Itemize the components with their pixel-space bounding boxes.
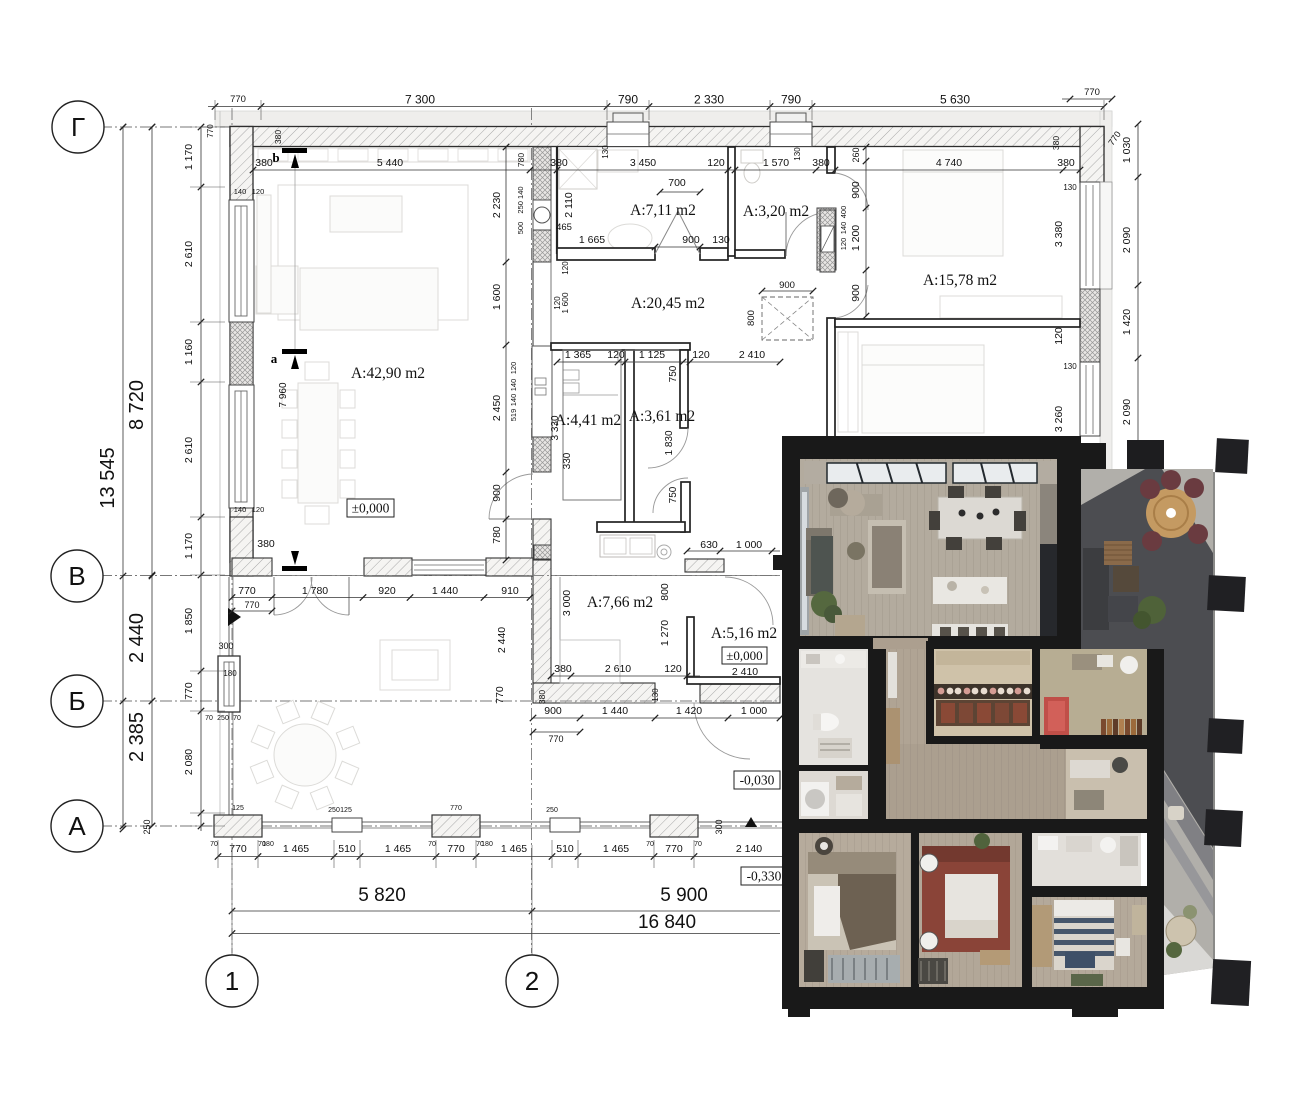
svg-text:1 465: 1 465 (501, 843, 527, 855)
svg-text:1 665: 1 665 (579, 234, 605, 246)
svg-text:790: 790 (781, 93, 801, 107)
svg-text:А: А (68, 811, 86, 841)
svg-text:±0,000: ±0,000 (726, 648, 762, 663)
svg-text:250: 250 (217, 715, 229, 722)
svg-text:1 600: 1 600 (491, 284, 503, 310)
svg-text:1 000: 1 000 (741, 705, 767, 717)
svg-text:120: 120 (1053, 327, 1065, 345)
svg-text:2 330: 2 330 (694, 93, 724, 107)
svg-text:140: 140 (839, 222, 848, 235)
svg-text:250: 250 (328, 807, 340, 814)
svg-text:5 900: 5 900 (660, 885, 708, 906)
svg-text:250: 250 (546, 807, 558, 814)
svg-text:130: 130 (651, 688, 660, 702)
svg-text:330: 330 (562, 452, 573, 469)
svg-text:7 960: 7 960 (278, 382, 289, 407)
svg-text:70: 70 (428, 841, 436, 848)
svg-text:120: 120 (707, 157, 725, 169)
svg-text:2 090: 2 090 (1121, 227, 1133, 253)
svg-text:770: 770 (548, 734, 563, 744)
svg-text:700: 700 (668, 177, 686, 189)
svg-text:1 170: 1 170 (183, 533, 195, 559)
svg-text:380: 380 (1051, 136, 1061, 150)
svg-text:120: 120 (252, 187, 265, 196)
svg-text:770: 770 (447, 843, 465, 855)
svg-text:2 090: 2 090 (1121, 399, 1133, 425)
svg-text:140: 140 (509, 379, 518, 392)
svg-text:770: 770 (1084, 87, 1100, 98)
svg-text:120: 120 (664, 663, 682, 675)
svg-text:A:5,16 m2: A:5,16 m2 (711, 625, 777, 642)
svg-text:900: 900 (491, 484, 503, 502)
svg-text:130: 130 (712, 234, 730, 246)
svg-text:2 385: 2 385 (126, 712, 148, 762)
svg-text:1: 1 (225, 966, 239, 996)
svg-text:1 570: 1 570 (763, 157, 789, 169)
svg-text:a: a (271, 351, 278, 366)
svg-text:В: В (68, 561, 85, 591)
svg-text:1 365: 1 365 (565, 349, 591, 361)
svg-text:380: 380 (257, 538, 275, 550)
svg-text:A:7,66 m2: A:7,66 m2 (587, 594, 653, 611)
svg-text:1 830: 1 830 (664, 430, 675, 455)
svg-text:770: 770 (665, 843, 683, 855)
svg-text:900: 900 (779, 280, 795, 291)
svg-text:910: 910 (501, 585, 519, 597)
svg-text:A:4,41 m2: A:4,41 m2 (555, 412, 621, 429)
svg-text:120: 120 (561, 261, 570, 275)
svg-text:7 300: 7 300 (405, 93, 435, 107)
svg-text:2 610: 2 610 (183, 437, 195, 463)
svg-text:A:3,20 m2: A:3,20 m2 (743, 203, 809, 220)
svg-text:260: 260 (851, 147, 861, 162)
svg-text:510: 510 (556, 843, 574, 855)
svg-text:1 780: 1 780 (302, 585, 328, 597)
svg-text:380: 380 (1057, 157, 1075, 169)
svg-text:70: 70 (646, 841, 654, 848)
svg-text:500: 500 (516, 222, 525, 235)
svg-text:380: 380 (255, 157, 273, 169)
svg-text:380: 380 (273, 130, 283, 144)
svg-text:380: 380 (537, 690, 547, 704)
svg-text:130: 130 (793, 147, 802, 161)
svg-text:2 410: 2 410 (732, 666, 758, 678)
svg-text:920: 920 (378, 585, 396, 597)
svg-text:3 260: 3 260 (1053, 406, 1065, 432)
svg-text:770: 770 (230, 94, 246, 105)
svg-text:2 080: 2 080 (183, 749, 195, 775)
svg-text:b: b (272, 150, 279, 165)
svg-text:770: 770 (450, 805, 462, 812)
svg-text:A:7,11 m2: A:7,11 m2 (630, 202, 696, 219)
svg-text:380: 380 (812, 157, 830, 169)
svg-text:16 840: 16 840 (638, 912, 696, 933)
svg-text:1 030: 1 030 (1121, 137, 1133, 163)
svg-text:8 720: 8 720 (126, 380, 148, 430)
svg-text:A:20,45 m2: A:20,45 m2 (631, 295, 705, 312)
svg-text:2 410: 2 410 (739, 349, 765, 361)
svg-text:900: 900 (850, 181, 862, 199)
svg-text:140: 140 (234, 505, 247, 514)
svg-text:130: 130 (1063, 183, 1077, 192)
svg-text:2 230: 2 230 (491, 192, 503, 218)
svg-text:510: 510 (338, 843, 356, 855)
svg-text:180: 180 (481, 841, 493, 848)
svg-text:-0,030: -0,030 (740, 773, 775, 788)
svg-text:125: 125 (232, 805, 244, 812)
svg-text:3 380: 3 380 (1053, 221, 1065, 247)
svg-text:120: 120 (509, 362, 518, 375)
svg-text:465: 465 (556, 222, 572, 233)
svg-text:125: 125 (340, 807, 352, 814)
svg-text:1 125: 1 125 (639, 349, 665, 361)
svg-text:1 465: 1 465 (603, 843, 629, 855)
svg-text:A:15,78 m2: A:15,78 m2 (923, 272, 997, 289)
svg-text:4 740: 4 740 (936, 157, 962, 169)
svg-text:1 465: 1 465 (385, 843, 411, 855)
svg-text:120: 120 (607, 349, 625, 361)
svg-text:900: 900 (544, 705, 562, 717)
svg-text:180: 180 (262, 841, 274, 848)
svg-text:1 160: 1 160 (183, 339, 195, 365)
svg-text:3 450: 3 450 (630, 157, 656, 169)
svg-text:1 850: 1 850 (183, 608, 195, 634)
svg-text:2 440: 2 440 (126, 613, 148, 663)
svg-text:750: 750 (668, 365, 679, 382)
svg-text:1 465: 1 465 (283, 843, 309, 855)
svg-text:300: 300 (714, 819, 724, 834)
svg-text:140: 140 (509, 394, 518, 407)
svg-text:770: 770 (183, 682, 195, 700)
svg-text:Г: Г (71, 112, 85, 142)
svg-text:5 820: 5 820 (358, 885, 406, 906)
svg-text:5 630: 5 630 (940, 93, 970, 107)
svg-text:380: 380 (550, 157, 568, 169)
svg-text:1 440: 1 440 (602, 705, 628, 717)
svg-text:900: 900 (850, 284, 862, 302)
svg-text:900: 900 (682, 234, 700, 246)
svg-text:120: 120 (839, 238, 848, 251)
svg-text:A:42,90 m2: A:42,90 m2 (351, 365, 425, 382)
svg-text:770: 770 (238, 585, 256, 597)
svg-text:1 170: 1 170 (183, 144, 195, 170)
svg-text:Б: Б (68, 686, 85, 716)
svg-text:120: 120 (252, 505, 265, 514)
svg-text:770: 770 (494, 686, 506, 704)
svg-text:400: 400 (839, 206, 848, 219)
svg-text:-0,330: -0,330 (747, 869, 782, 884)
svg-text:2 140: 2 140 (736, 843, 762, 855)
svg-text:790: 790 (618, 93, 638, 107)
svg-text:780: 780 (516, 153, 526, 167)
svg-text:13 545: 13 545 (97, 447, 119, 508)
svg-text:1 200: 1 200 (850, 225, 862, 251)
svg-text:780: 780 (491, 526, 503, 544)
svg-text:2 110: 2 110 (563, 192, 575, 218)
svg-text:519: 519 (509, 409, 518, 422)
svg-text:2 440: 2 440 (496, 627, 508, 653)
svg-text:70: 70 (233, 715, 241, 722)
svg-text:2 610: 2 610 (605, 663, 631, 675)
svg-text:300: 300 (218, 641, 233, 651)
svg-text:130: 130 (1063, 362, 1077, 371)
svg-text:2 610: 2 610 (183, 241, 195, 267)
svg-text:800: 800 (659, 583, 671, 601)
svg-text:140: 140 (234, 187, 247, 196)
svg-text:770: 770 (244, 600, 259, 610)
svg-text:1 270: 1 270 (659, 620, 671, 646)
svg-text:380: 380 (554, 663, 572, 675)
svg-text:750: 750 (668, 486, 679, 503)
svg-text:1 440: 1 440 (432, 585, 458, 597)
svg-text:1 420: 1 420 (676, 705, 702, 717)
svg-text:630: 630 (700, 539, 718, 551)
svg-text:70: 70 (694, 841, 702, 848)
svg-text:250 140: 250 140 (516, 186, 525, 213)
svg-text:±0,000: ±0,000 (352, 501, 390, 516)
svg-text:A:3,61 m2: A:3,61 m2 (629, 408, 695, 425)
svg-text:2 450: 2 450 (491, 395, 503, 421)
svg-text:70: 70 (205, 715, 213, 722)
svg-text:5 440: 5 440 (377, 157, 403, 169)
svg-text:1 420: 1 420 (1121, 309, 1133, 335)
svg-text:70: 70 (210, 841, 218, 848)
svg-text:800: 800 (746, 310, 757, 326)
svg-text:770: 770 (206, 124, 215, 138)
svg-text:2: 2 (525, 966, 539, 996)
svg-text:180: 180 (223, 669, 237, 678)
svg-text:120: 120 (692, 349, 710, 361)
svg-text:1 600: 1 600 (560, 292, 570, 314)
svg-text:3 000: 3 000 (561, 590, 573, 616)
svg-text:1 000: 1 000 (736, 539, 762, 551)
svg-text:130: 130 (601, 145, 610, 159)
